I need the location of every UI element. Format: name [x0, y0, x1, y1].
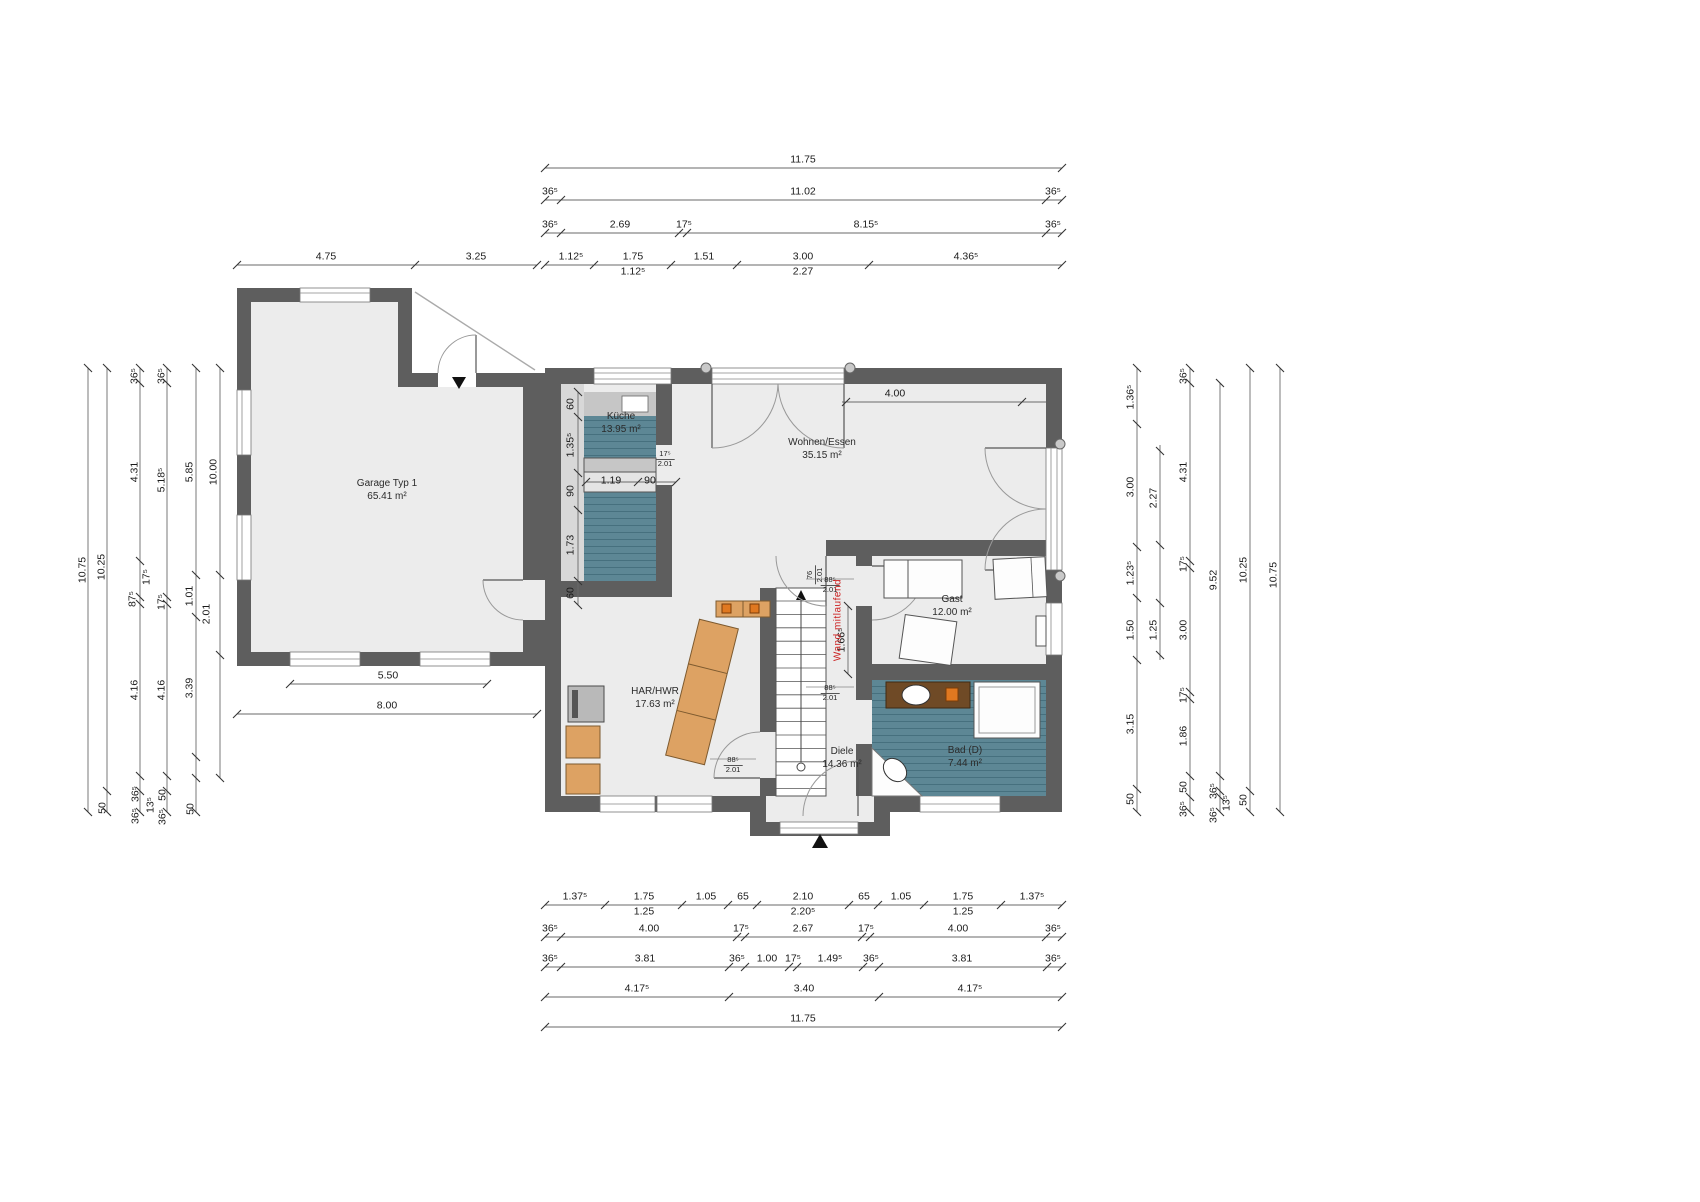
- kitchen-window-top: [594, 368, 671, 384]
- dimension-label: 1.51: [694, 252, 714, 263]
- dimension-label: 50: [1126, 793, 1137, 805]
- dimension-label: 1.00: [757, 954, 777, 965]
- dimension-label: 4.00: [885, 389, 905, 400]
- dimension-label: 1.73: [566, 535, 577, 555]
- dimension-label: 3.81: [952, 954, 972, 965]
- dimension-label: 90: [566, 485, 577, 497]
- room-area: 14.36 m²: [822, 759, 861, 770]
- dimension-label: 36⁵: [1045, 220, 1061, 231]
- dimension-label: 2.67: [793, 924, 813, 935]
- room-name: Gast: [941, 594, 962, 605]
- dimension-label: 50: [1179, 781, 1190, 793]
- dimension-label: 36⁵: [1179, 368, 1190, 384]
- dimension-label: 1.05: [696, 892, 716, 903]
- floor-plan-drawing: [0, 0, 1700, 1202]
- dimension-label: 36⁵: [1045, 187, 1061, 198]
- dimension-label: 1.37⁵: [563, 892, 588, 903]
- dimension-label: 13⁵: [146, 797, 157, 813]
- dimension-label: 10.25: [1239, 557, 1250, 583]
- room-name: Wohnen/Essen: [788, 437, 856, 448]
- dimension-label: 50: [1239, 794, 1250, 806]
- dimension-label: 4.17⁵: [625, 984, 650, 995]
- shelf-nook: [716, 601, 770, 617]
- dimension-label: 10.25: [97, 554, 108, 580]
- dimension-label: 36⁵: [1209, 807, 1220, 823]
- dimension-label: 2.10: [793, 892, 813, 903]
- guest-window-right: [1046, 603, 1062, 655]
- dimension-label: 4.16: [130, 680, 141, 700]
- dimension-label: 3.39: [185, 678, 196, 698]
- dimension-label: 3.00: [1179, 620, 1190, 640]
- dimension-label: 3.81: [635, 954, 655, 965]
- downpipe-icon: [1055, 571, 1065, 581]
- dimension-label: 36⁵: [1209, 783, 1220, 799]
- dimension-label: 1.12⁵: [559, 252, 584, 263]
- dimension-label: 1.25: [1149, 620, 1160, 640]
- room-label: Garage Typ 165.41 m²: [357, 477, 417, 503]
- downpipe-icon: [1055, 439, 1065, 449]
- dimension-label: 1.01: [185, 586, 196, 606]
- cabinet: [566, 764, 600, 794]
- dimension-label: 3.00: [1126, 477, 1137, 497]
- dimension-label: 36⁵: [131, 786, 142, 802]
- dimension-label: 2.27: [793, 267, 813, 278]
- dimension-label: 8.15⁵: [854, 220, 879, 231]
- room-label: Küche13.95 m²: [601, 410, 640, 436]
- dimension-label: 36⁵: [1045, 924, 1061, 935]
- dimension-label: 4.75: [316, 252, 336, 263]
- bed: [993, 557, 1047, 600]
- room-label: Gast12.00 m²: [932, 593, 971, 619]
- room-area: 7.44 m²: [948, 758, 982, 769]
- dimension-label: 17⁵: [676, 220, 692, 231]
- entrance-marker-icon: [812, 834, 828, 848]
- dimension-label: 1.86: [1179, 726, 1190, 746]
- dimension-label: 65: [858, 892, 870, 903]
- dimension-label: 9.52: [1209, 570, 1220, 590]
- dimension-label: 1.19: [601, 476, 621, 487]
- dimension-label: 1.75: [623, 252, 643, 263]
- dimension-label: 1.75: [634, 892, 654, 903]
- dimension-label: 4.31: [1179, 462, 1190, 482]
- dimension-label: 17⁵: [1179, 556, 1190, 572]
- dimension-label: 1.49⁵: [818, 954, 843, 965]
- dimension-label: 1.36⁵: [1126, 385, 1137, 410]
- dimension-label: 60: [566, 587, 577, 599]
- dimension-label: 11.75: [790, 155, 816, 166]
- bath-accessory: [946, 688, 958, 701]
- room-name: Garage Typ 1: [357, 478, 417, 489]
- shower: [974, 682, 1040, 738]
- dimension-label: 50: [186, 803, 197, 815]
- dimension-label: 3.40: [794, 984, 814, 995]
- dimension-label: 17⁵: [858, 924, 874, 935]
- dimension-label: 8.00: [377, 701, 397, 712]
- room-label: Wohnen/Essen35.15 m²: [788, 436, 856, 462]
- floor-plan-page: 11.7536⁵11.0236⁵36⁵2.6917⁵8.15⁵36⁵1.12⁵1…: [0, 0, 1700, 1202]
- door-size-label: 88⁵2.01: [724, 756, 743, 774]
- downpipe-icon: [701, 363, 711, 373]
- door-size-label: 88⁵2.01: [821, 684, 840, 702]
- dimension-label: 36⁵: [542, 924, 558, 935]
- room-label: Bad (D)7.44 m²: [948, 744, 982, 770]
- dimension-label: 13⁵: [1222, 795, 1233, 811]
- dimension-label: 1.05: [891, 892, 911, 903]
- dimension-label: 10.75: [1269, 562, 1280, 588]
- dimension-label: 4.36⁵: [954, 252, 979, 263]
- dimension-label: 36⁵: [542, 187, 558, 198]
- room-area: 13.95 m²: [601, 424, 640, 435]
- dimension-label: 90: [644, 476, 656, 487]
- dimension-label: 4.17⁵: [958, 984, 983, 995]
- dimension-label: 36⁵: [158, 809, 169, 825]
- dimension-label: 3.15: [1126, 714, 1137, 734]
- dimension-label: 10.00: [209, 459, 220, 485]
- desk: [899, 615, 957, 666]
- room-name: Küche: [607, 411, 635, 422]
- room-label: HAR/HWR17.63 m²: [631, 685, 679, 711]
- dimension-label: 36⁵: [157, 368, 168, 384]
- dimension-label: 1.25: [634, 907, 654, 918]
- wardrobe: [884, 560, 908, 598]
- room-label: Diele14.36 m²: [822, 745, 861, 771]
- dimension-label: 1.35⁵: [566, 433, 577, 458]
- wall-annotation: Wand mitlaufend: [833, 579, 844, 661]
- dimension-label: 2.69: [610, 220, 630, 231]
- room-name: Bad (D): [948, 745, 982, 756]
- room-area: 65.41 m²: [367, 491, 406, 502]
- dimension-label: 4.00: [639, 924, 659, 935]
- dimension-label: 50: [98, 802, 109, 814]
- dimension-label: 2.27: [1149, 488, 1160, 508]
- dimension-label: 3.00: [793, 252, 813, 263]
- dimension-label: 5.18⁵: [157, 468, 168, 493]
- dimension-label: 17⁵: [733, 924, 749, 935]
- shelf: [1036, 616, 1046, 646]
- dimension-label: 5.85: [185, 462, 196, 482]
- dimension-label: 36⁵: [542, 220, 558, 231]
- dimension-label: 1.37⁵: [1020, 892, 1045, 903]
- dimension-label: 3.25: [466, 252, 486, 263]
- room-area: 35.15 m²: [802, 450, 841, 461]
- dimension-label: 36⁵: [729, 954, 745, 965]
- bathroom: [872, 680, 1046, 796]
- dimension-label: 2.01: [202, 604, 213, 624]
- dimension-label: 1.75: [953, 892, 973, 903]
- dimension-label: 4.16: [157, 680, 168, 700]
- dimension-label: 36⁵: [130, 368, 141, 384]
- dimension-label: 36⁵: [542, 954, 558, 965]
- downpipe-icon: [845, 363, 855, 373]
- roof-edge-line: [415, 292, 535, 370]
- dimension-label: 11.02: [790, 187, 816, 198]
- dimension-label: 65: [737, 892, 749, 903]
- dimension-label: 1.25: [953, 907, 973, 918]
- dimension-label: 87⁵: [128, 591, 139, 607]
- dimension-label: 10.75: [78, 557, 89, 583]
- dimension-label: 1.23⁵: [1126, 561, 1137, 586]
- dimension-label: 50: [158, 789, 169, 801]
- door-size-label: 762.01: [806, 566, 824, 585]
- cabinet: [566, 726, 600, 758]
- room-name: Diele: [831, 746, 854, 757]
- dimension-label: 17⁵: [1179, 687, 1190, 703]
- door-size-label: 17⁵2.01: [656, 450, 675, 468]
- dimension-label: 17⁵: [157, 594, 168, 610]
- room-area: 12.00 m²: [932, 607, 971, 618]
- dimension-label: 36⁵: [131, 808, 142, 824]
- dimension-label: 17⁵: [785, 954, 801, 965]
- garage-side-door: [438, 335, 476, 389]
- dimension-label: 60: [566, 398, 577, 410]
- room-area: 17.63 m²: [635, 699, 674, 710]
- dimension-label: 36⁵: [1179, 801, 1190, 817]
- dimension-label: 2.20⁵: [791, 907, 816, 918]
- dimension-label: 1.12⁵: [621, 267, 646, 278]
- dimension-label: 5.50: [378, 671, 398, 682]
- dimension-label: 1.50: [1126, 620, 1137, 640]
- room-name: HAR/HWR: [631, 686, 679, 697]
- dimension-label: 4.00: [948, 924, 968, 935]
- staircase: [776, 588, 826, 796]
- dimension-label: 17⁵: [142, 569, 153, 585]
- dimension-label: 36⁵: [863, 954, 879, 965]
- sink: [902, 685, 930, 705]
- dimension-label: 4.31: [130, 462, 141, 482]
- dimension-label: 36⁵: [1045, 954, 1061, 965]
- dimension-label: 11.75: [790, 1014, 816, 1025]
